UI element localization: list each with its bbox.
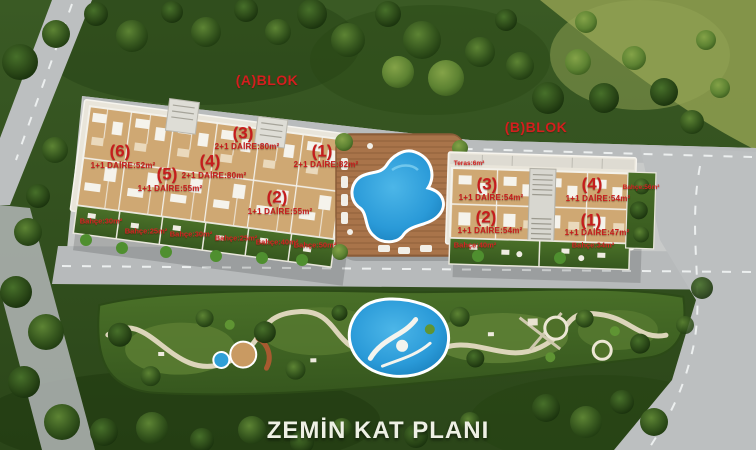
unit-b3-area: 1+1 DAİRE:54m²	[459, 194, 524, 202]
unit-a3-number: (3)	[233, 125, 254, 142]
site-plan-render: (A)BLOK (B)BLOK (6) 1+1 DAİRE:52m² (5) 1…	[0, 0, 756, 450]
garden-a2-label: Bahçe:40m²	[256, 238, 299, 246]
garden-a4-label: Bahçe:30m²	[170, 230, 213, 238]
unit-b2-area: 1+1 DAİRE:54m²	[458, 227, 523, 235]
unit-b4-number: (4)	[582, 176, 603, 193]
unit-a3-area: 2+1 DAİRE:80m²	[215, 143, 280, 151]
block-b-label: (B)BLOK	[505, 120, 568, 134]
garden-b2-label: Bahçe:40m²	[454, 241, 497, 249]
unit-a2-area: 1+1 DAİRE:55m²	[248, 208, 313, 216]
unit-b4-area: 1+1 DAİRE:54m²	[566, 195, 631, 203]
unit-b3-number: (3)	[477, 176, 498, 193]
unit-a6-number: (6)	[110, 143, 131, 160]
building-b	[445, 152, 645, 283]
unit-a4-area: 2+1 DAİRE:80m²	[182, 172, 247, 180]
unit-a5-area: 1+1 DAİRE:55m²	[138, 185, 203, 193]
unit-a5-number: (5)	[157, 166, 178, 183]
unit-a1-area: 2+1 DAİRE:82m²	[294, 161, 359, 169]
garden-a1-label: Bahçe:50m²	[294, 241, 337, 249]
unit-b1-area: 1+1 DAİRE:47m²	[565, 229, 630, 237]
unit-a6-area: 1+1 DAİRE:52m²	[91, 162, 156, 170]
garden-a3-label: Bahçe:25m²	[215, 234, 258, 242]
unit-a2-number: (2)	[267, 189, 288, 206]
terrace-b-label: Teras:6m²	[454, 161, 485, 168]
unit-a1-number: (1)	[312, 143, 333, 160]
garden-a6-label: Bahçe:30m²	[80, 217, 123, 225]
garden-b1-label: Bahçe:34m²	[572, 241, 615, 249]
unit-a4-number: (4)	[200, 153, 221, 170]
plan-title: ZEMİN KAT PLANI	[267, 417, 490, 445]
garden-a5-label: Bahçe:25m²	[125, 227, 168, 235]
unit-b2-number: (2)	[476, 209, 497, 226]
garden-b-side-label: Bahçe:56m²	[623, 185, 660, 192]
unit-b1-number: (1)	[581, 212, 602, 229]
block-a-label: (A)BLOK	[236, 73, 299, 87]
